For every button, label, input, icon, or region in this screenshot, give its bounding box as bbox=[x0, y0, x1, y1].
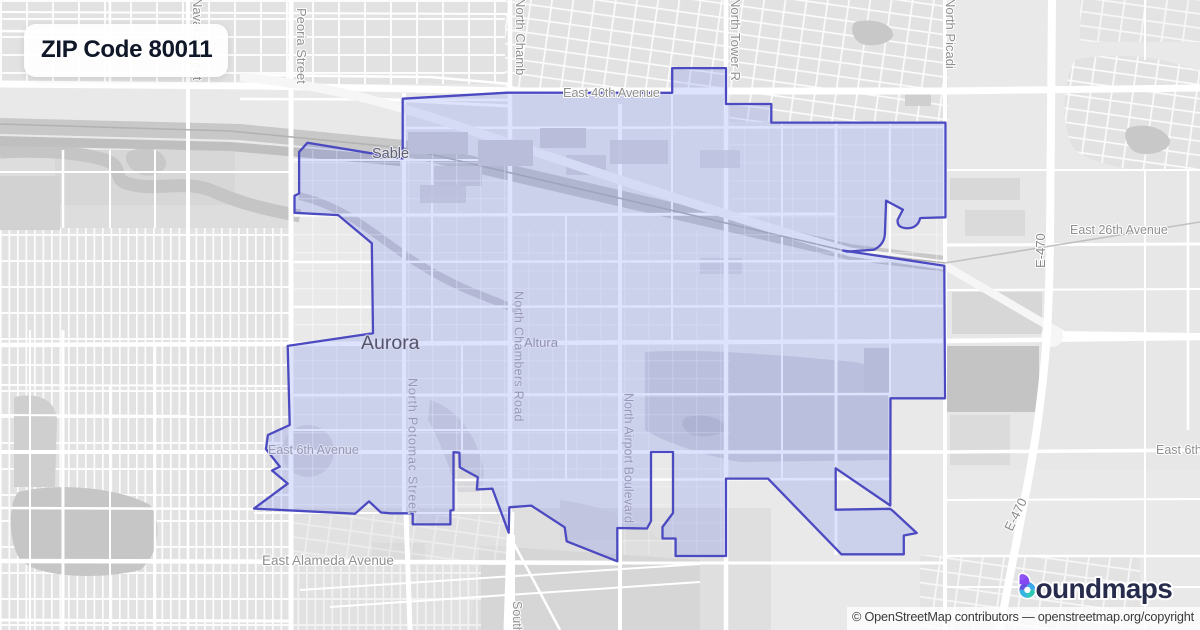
svg-text:East 26th Avenue: East 26th Avenue bbox=[1070, 223, 1168, 237]
svg-text:North Airport Boulevard: North Airport Boulevard bbox=[622, 393, 636, 523]
svg-text:E-470: E-470 bbox=[1033, 233, 1048, 268]
svg-text:East 40th Avenue: East 40th Avenue bbox=[563, 85, 660, 100]
svg-text:North Tower R: North Tower R bbox=[728, 0, 743, 81]
svg-text:Aurora: Aurora bbox=[361, 332, 420, 354]
svg-text:Sable: Sable bbox=[372, 146, 409, 162]
svg-text:North Chamb: North Chamb bbox=[513, 0, 528, 75]
svg-text:North Picadi: North Picadi bbox=[943, 0, 958, 69]
svg-text:Altura: Altura bbox=[524, 335, 559, 350]
svg-text:oundmaps: oundmaps bbox=[1036, 573, 1173, 604]
svg-text:North Potomac Street: North Potomac Street bbox=[406, 378, 420, 514]
svg-text:Peoria Street: Peoria Street bbox=[294, 8, 309, 84]
svg-text:North Chambers Road: North Chambers Road bbox=[512, 291, 526, 422]
svg-text:South Ch: South Ch bbox=[510, 601, 524, 630]
svg-text:East 6th Avenue: East 6th Avenue bbox=[268, 443, 359, 457]
svg-text:East 6th: East 6th bbox=[1156, 443, 1200, 457]
svg-text:East Alameda Avenue: East Alameda Avenue bbox=[262, 553, 394, 568]
